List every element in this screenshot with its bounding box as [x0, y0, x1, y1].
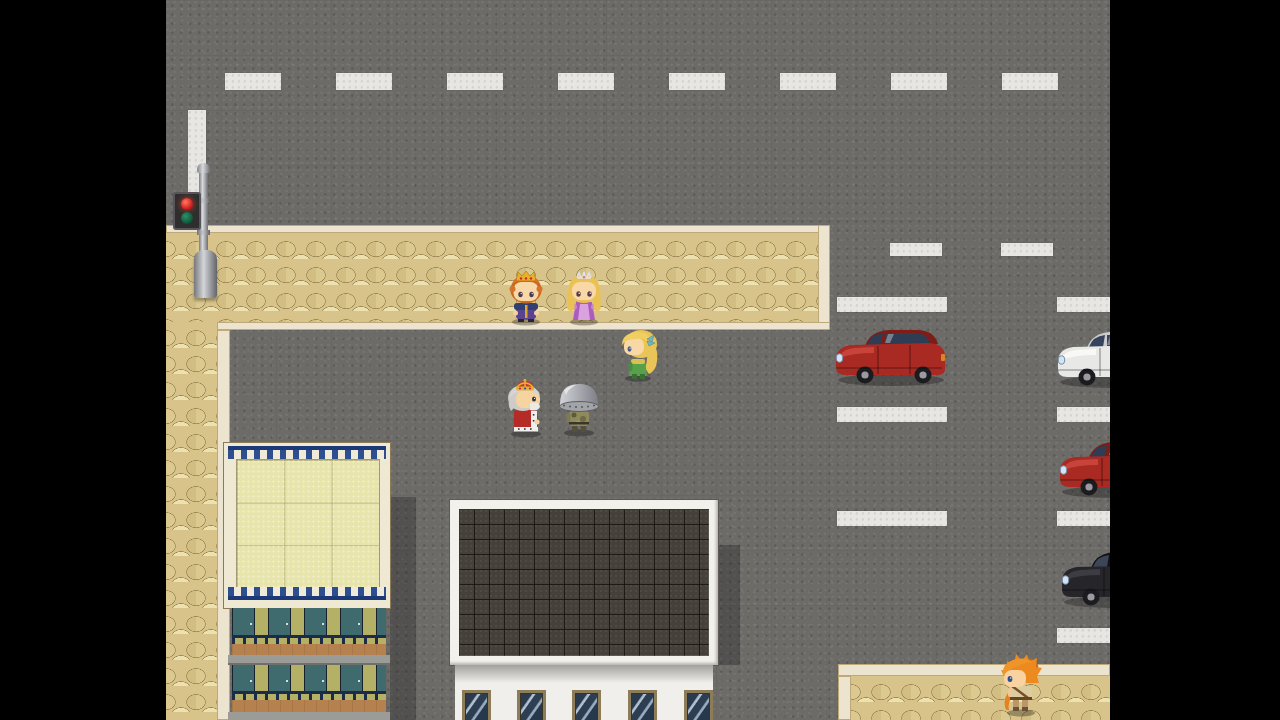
letterboxed-screen: [0, 0, 1280, 720]
door-row: [232, 608, 386, 636]
concrete-ledge: [228, 712, 390, 720]
npc-princess[interactable]: [564, 269, 604, 326]
player-hero[interactable]: [999, 652, 1043, 717]
left-building-floor: [232, 665, 386, 712]
lane-dash: [1001, 243, 1053, 256]
center-building-roof: [450, 500, 718, 665]
parking-line: [1057, 628, 1110, 643]
npc-blonde-girl[interactable]: [618, 327, 660, 382]
balcony-railing: [232, 635, 386, 644]
green-light-icon: [181, 212, 193, 224]
sidewalk-border: [838, 664, 1110, 676]
traffic-light-cap: [197, 163, 210, 173]
letterbox-right: [1110, 0, 1280, 720]
left-building-roof: [224, 443, 390, 608]
sidewalk-border: [838, 676, 851, 720]
parking-line: [837, 407, 947, 422]
lane-dash: [891, 73, 947, 90]
lane-dash: [669, 73, 725, 90]
parking-line: [837, 511, 947, 526]
lane-dash: [558, 73, 614, 90]
lane-dash: [1002, 73, 1058, 90]
lane-dash: [890, 243, 942, 256]
white-car: [1052, 328, 1110, 392]
door-row: [232, 665, 386, 692]
lane-dash: [780, 73, 836, 90]
window: [628, 690, 657, 720]
red-car: [830, 326, 952, 390]
window: [684, 690, 713, 720]
red-light-icon: [181, 198, 193, 210]
roof-trim-blue: [228, 587, 386, 600]
building-shadow: [390, 497, 416, 720]
building-shadow: [718, 545, 740, 665]
roof-tiles: [236, 459, 380, 589]
npc-prince[interactable]: [506, 269, 546, 326]
concrete-ledge: [228, 655, 390, 665]
parking-line: [1057, 407, 1110, 422]
balcony-railing: [232, 691, 386, 700]
red-car-2: [1054, 438, 1110, 502]
black-car: [1056, 548, 1110, 612]
left-building-floor: [232, 608, 386, 657]
sidewalk-border: [166, 225, 830, 233]
lane-dash: [336, 73, 392, 90]
parking-line: [1057, 297, 1110, 312]
sidewalk-upper: [166, 233, 818, 322]
parking-line: [1057, 511, 1110, 526]
signal-box: [173, 192, 201, 230]
roof-tiles: [459, 509, 709, 656]
window: [517, 690, 546, 720]
npc-old-king[interactable]: [504, 379, 548, 438]
parking-line: [837, 297, 947, 312]
sidewalk-border: [818, 225, 830, 330]
lane-dash: [447, 73, 503, 90]
npc-helmet-soldier[interactable]: [556, 378, 602, 437]
game-screen[interactable]: [166, 0, 1110, 720]
roof-trim-blue: [228, 446, 386, 459]
pole-collar: [197, 230, 210, 235]
traffic-light-base: [194, 250, 217, 298]
balcony-floor: [232, 700, 386, 712]
window: [462, 690, 491, 720]
letterbox-left: [0, 0, 166, 720]
sidewalk-left-strip: [166, 322, 217, 720]
window: [572, 690, 601, 720]
center-building-wall: [455, 665, 713, 720]
lane-dash: [225, 73, 281, 90]
wall-shadow: [455, 665, 713, 683]
sidewalk-bottom-right: [851, 676, 1110, 720]
